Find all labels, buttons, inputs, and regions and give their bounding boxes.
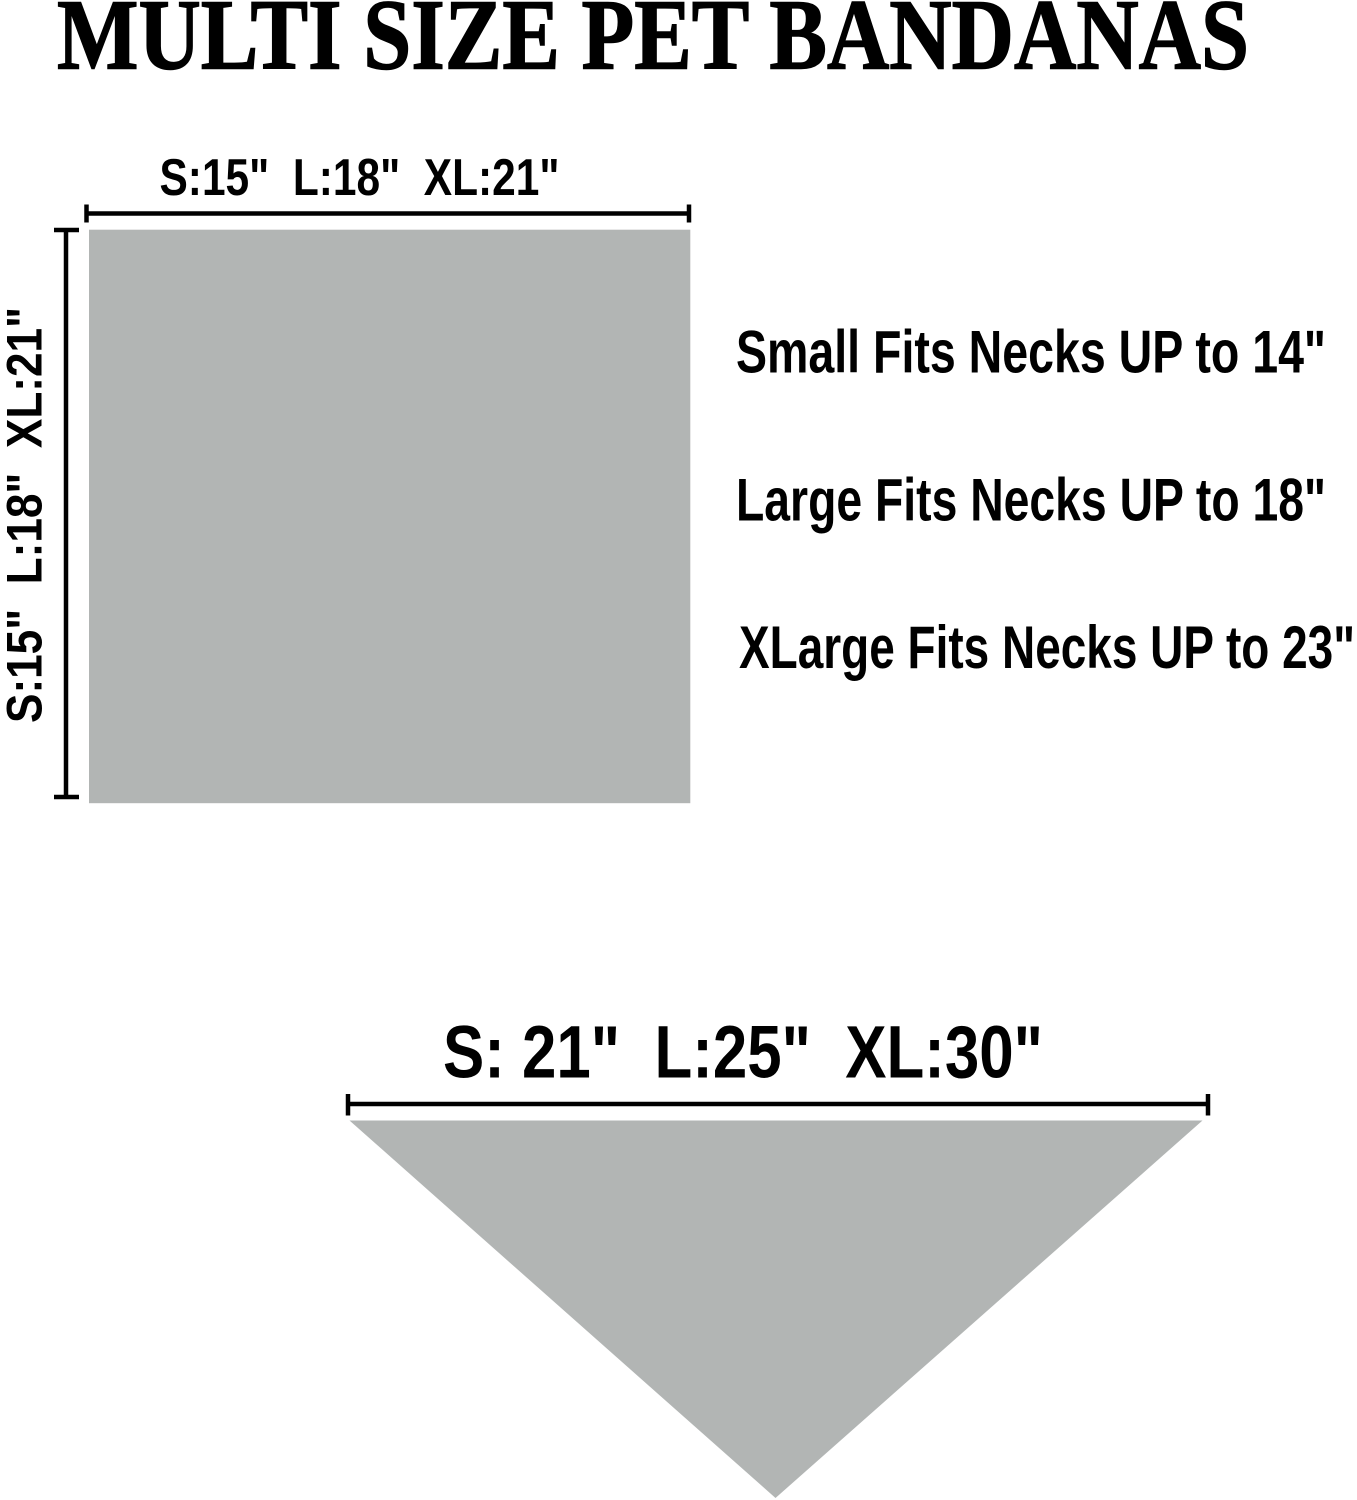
svg-text:S: 21" L:25" XL:30": S: 21" L:25" XL:30": [443, 1010, 1043, 1093]
svg-text:XLarge Fits Necks UP to 23": XLarge Fits Necks UP to 23": [739, 614, 1355, 681]
svg-text:Small Fits Necks UP to 14": Small Fits Necks UP to 14": [736, 319, 1326, 386]
svg-text:MULTI SIZE PET BANDANAS: MULTI SIZE PET BANDANAS: [57, 0, 1249, 91]
svg-text:Large Fits Necks UP to 18": Large Fits Necks UP to 18": [736, 466, 1326, 533]
svg-text:S:15" L:18" XL:21": S:15" L:18" XL:21": [0, 307, 53, 723]
svg-text:S:15" L:18" XL:21": S:15" L:18" XL:21": [160, 148, 560, 206]
